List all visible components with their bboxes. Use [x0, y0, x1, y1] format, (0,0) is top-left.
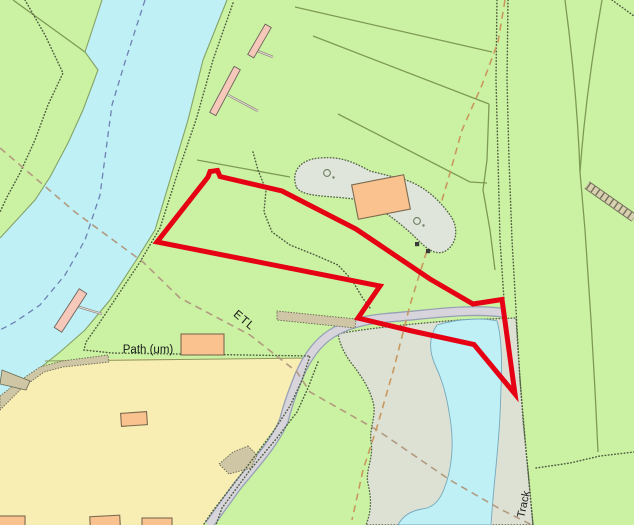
- post-symbol: [415, 242, 419, 246]
- building: [0, 516, 25, 525]
- building: [121, 412, 148, 427]
- building: [181, 334, 224, 355]
- building: [142, 518, 172, 525]
- building: [90, 515, 121, 525]
- path-um-label: Path (um): [123, 344, 174, 356]
- map-canvas: Path (um) ETL Track: [0, 0, 634, 525]
- post-symbol: [426, 249, 430, 253]
